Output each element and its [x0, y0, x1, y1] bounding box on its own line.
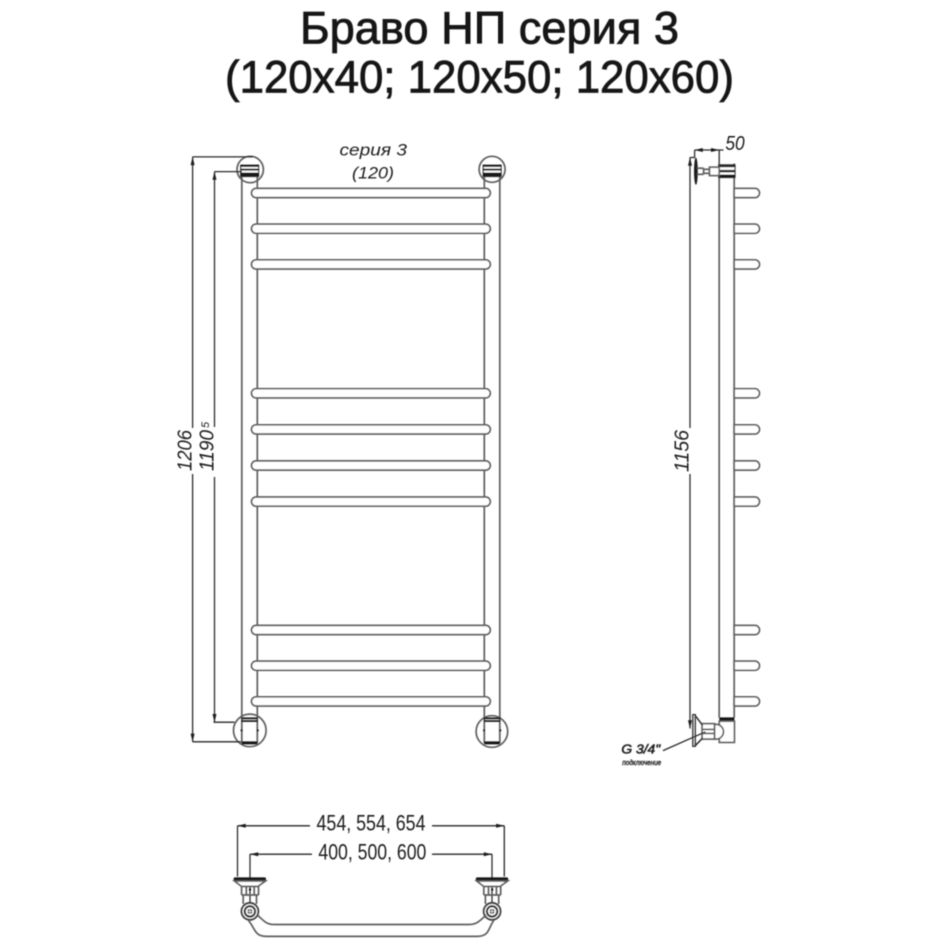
svg-text:серия 3: серия 3	[340, 140, 408, 159]
svg-text:5: 5	[200, 421, 212, 428]
svg-text:(120): (120)	[352, 163, 394, 182]
svg-text:Браво НП серия 3: Браво НП серия 3	[300, 2, 679, 53]
svg-text:1156: 1156	[672, 429, 694, 472]
svg-text:1206: 1206	[175, 429, 197, 471]
svg-text:подключение: подключение	[622, 758, 661, 767]
svg-text:G 3/4": G 3/4"	[621, 742, 661, 757]
svg-text:1190: 1190	[197, 430, 219, 471]
svg-text:50: 50	[725, 133, 744, 155]
svg-text:(120x40; 120x50; 120x60): (120x40; 120x50; 120x60)	[225, 52, 734, 103]
svg-text:400, 500, 600: 400, 500, 600	[318, 840, 426, 865]
svg-text:454, 554, 654: 454, 554, 654	[317, 810, 426, 835]
